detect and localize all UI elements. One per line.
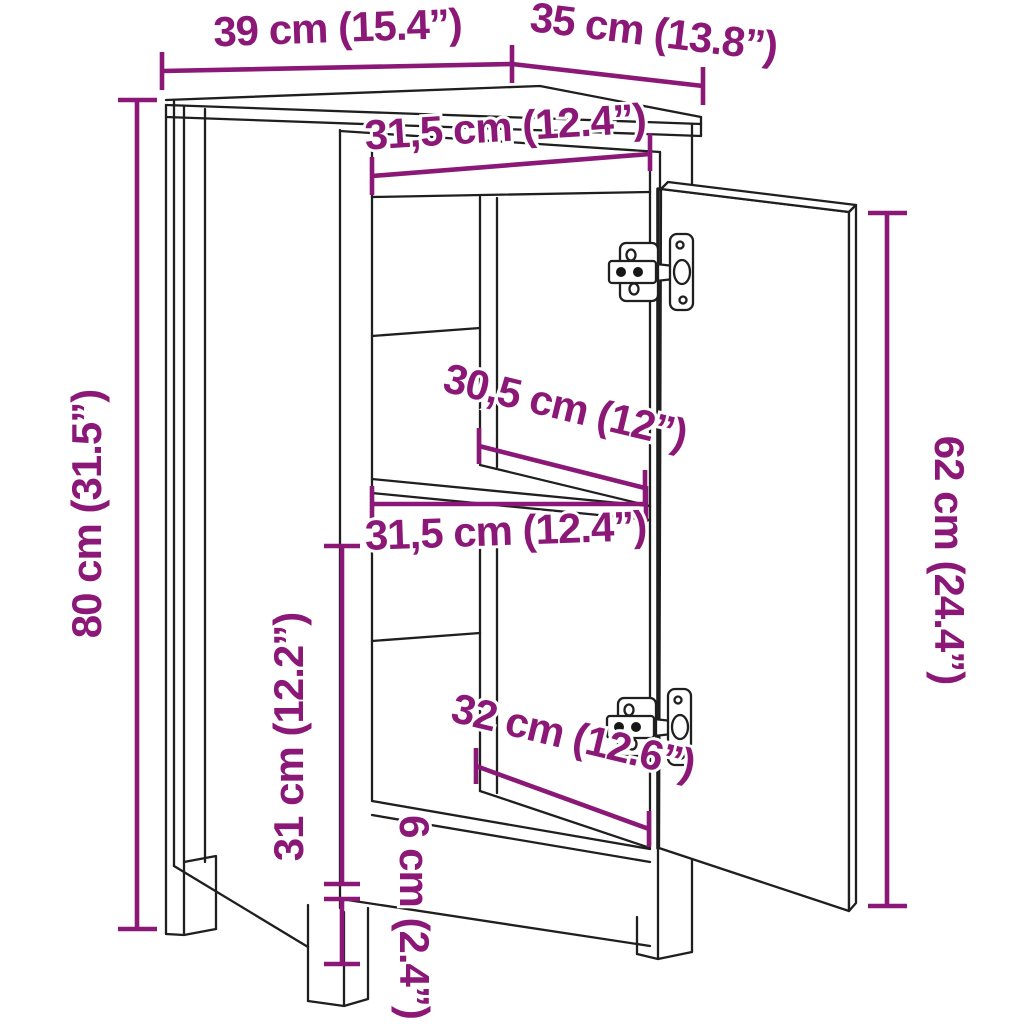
door-outer-edge <box>849 205 856 911</box>
dim-line <box>324 546 360 884</box>
dim-top-depth-label: 35 cm (13.8”) <box>528 0 780 70</box>
dim-line <box>118 100 157 929</box>
dim-shelf-depth: 30,5 cm (12”) <box>439 354 692 506</box>
dim-overall-height: 80 cm (31.5”) <box>63 100 157 929</box>
hinge-top-icon <box>609 234 693 310</box>
left-wall-rail-line-upper <box>372 328 480 336</box>
rear-leg-bottom <box>166 929 216 935</box>
dim-top-width-label: 39 cm (15.4”) <box>213 0 463 55</box>
dim-line <box>868 213 907 906</box>
rear-leg-side <box>184 856 216 929</box>
dim-overall-height-label: 80 cm (31.5”) <box>63 390 110 638</box>
dim-lower-opening-height-label: 31 cm (12.2”) <box>265 613 312 861</box>
left-side-bottom-edge <box>174 866 308 947</box>
left-wall-rail-line-lower <box>372 633 480 641</box>
dim-opening-width-top: 31,5 cm (12.4”) <box>363 94 650 195</box>
shelf-back-edge <box>480 465 650 506</box>
dim-opening-width-middle-label: 31,5 cm (12.4”) <box>364 502 647 559</box>
bottom-rail-edge <box>341 899 650 946</box>
dim-door-height: 62 cm (24.4”) <box>868 213 973 906</box>
dim-line <box>324 899 360 964</box>
front-left-leg-bottom <box>308 999 368 1006</box>
dim-door-height-label: 62 cm (24.4”) <box>926 436 973 684</box>
dim-leg-height-label: 6 cm (2.4”) <box>391 815 438 1019</box>
opening-top-edge <box>372 192 650 197</box>
dimension-diagram: 39 cm (15.4”) 35 cm (13.8”) 80 cm (31.5”… <box>0 0 1024 1024</box>
dim-top-width: 39 cm (15.4”) <box>162 0 512 90</box>
dim-lower-opening-height: 31 cm (12.2”) <box>265 546 360 884</box>
front-right-leg-bottom <box>637 952 692 959</box>
cabinet-diagram-svg: 39 cm (15.4”) 35 cm (13.8”) 80 cm (31.5”… <box>0 0 1024 1024</box>
